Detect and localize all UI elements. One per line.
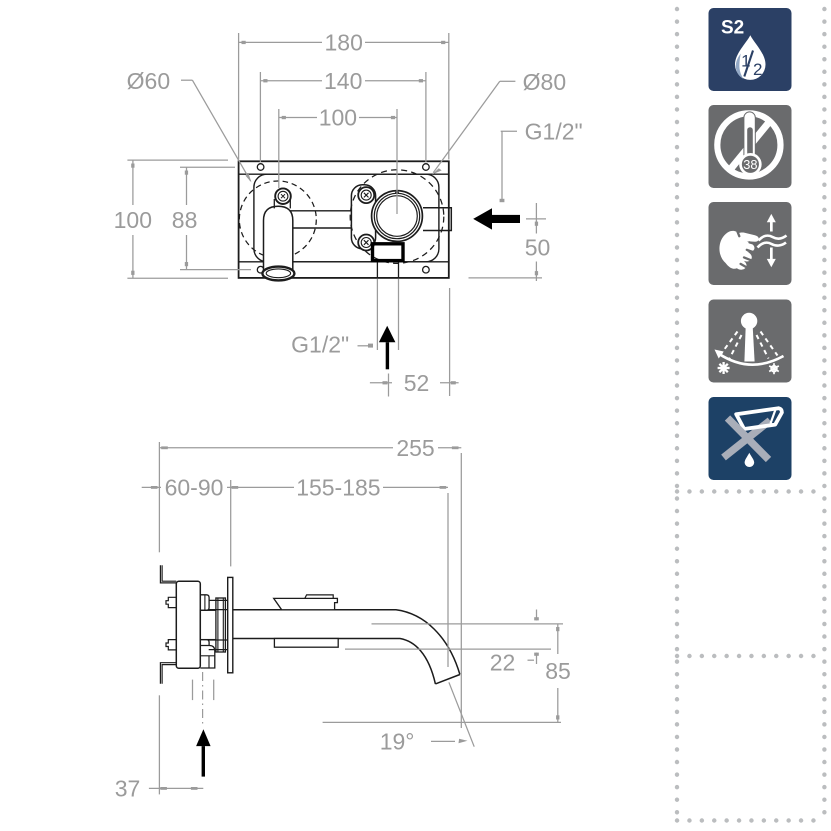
svg-text:37: 37 xyxy=(115,776,141,802)
svg-text:155-185: 155-185 xyxy=(296,475,380,501)
svg-text:S2: S2 xyxy=(721,18,744,39)
svg-text:50: 50 xyxy=(525,235,551,261)
svg-text:19°: 19° xyxy=(380,729,415,755)
svg-text:60-90: 60-90 xyxy=(165,475,224,501)
svg-text:G1/2": G1/2" xyxy=(525,119,583,145)
svg-text:88: 88 xyxy=(172,207,198,233)
svg-text:Ø60: Ø60 xyxy=(127,68,170,94)
svg-text:52: 52 xyxy=(404,370,430,396)
svg-text:G1/2": G1/2" xyxy=(291,332,349,358)
svg-text:100: 100 xyxy=(319,105,357,131)
svg-text:2: 2 xyxy=(753,60,762,79)
svg-text:140: 140 xyxy=(324,68,362,94)
svg-text:Ø80: Ø80 xyxy=(523,69,566,95)
svg-text:85: 85 xyxy=(545,658,571,684)
svg-text:180: 180 xyxy=(325,30,363,56)
svg-text:100: 100 xyxy=(114,207,152,233)
svg-text:255: 255 xyxy=(396,435,434,461)
svg-text:22: 22 xyxy=(490,649,516,675)
svg-text:38: 38 xyxy=(743,157,757,172)
